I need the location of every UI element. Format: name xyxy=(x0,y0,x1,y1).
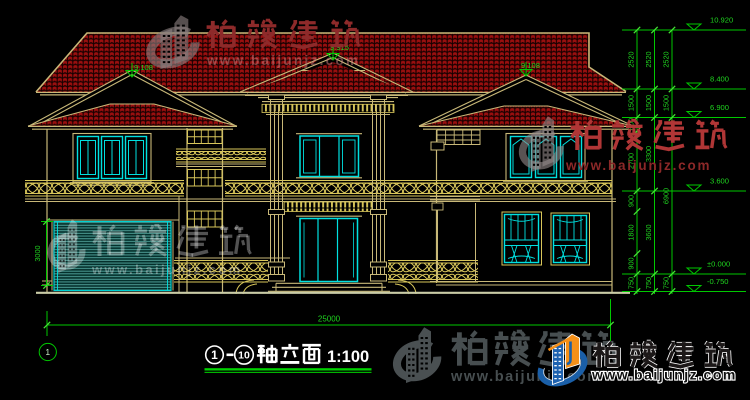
svg-text:1800: 1800 xyxy=(627,224,636,240)
svg-text:1500: 1500 xyxy=(644,95,653,111)
svg-text:6900: 6900 xyxy=(662,188,671,204)
svg-text:750: 750 xyxy=(644,277,653,289)
svg-text:3600: 3600 xyxy=(644,224,653,240)
svg-text:10.920: 10.920 xyxy=(710,16,733,25)
svg-text:±0.000: ±0.000 xyxy=(707,260,730,269)
svg-text:6.900: 6.900 xyxy=(710,103,729,112)
svg-text:2520: 2520 xyxy=(662,51,671,67)
svg-text:1: 1 xyxy=(45,347,50,357)
svg-text:25000: 25000 xyxy=(318,315,341,324)
svg-text:www.baijunjz.com: www.baijunjz.com xyxy=(91,262,243,277)
svg-text:900: 900 xyxy=(627,195,636,207)
svg-text:3000: 3000 xyxy=(33,245,42,261)
svg-text:8.400: 8.400 xyxy=(710,75,729,84)
svg-text:2520: 2520 xyxy=(644,51,653,67)
svg-text:750: 750 xyxy=(627,277,636,289)
svg-text:2520: 2520 xyxy=(627,51,636,67)
svg-text:3.600: 3.600 xyxy=(710,177,729,186)
svg-text:1500: 1500 xyxy=(662,95,671,111)
svg-text:-0.750: -0.750 xyxy=(707,277,729,286)
svg-text:900: 900 xyxy=(627,257,636,269)
svg-text:www.baijunjz.com: www.baijunjz.com xyxy=(591,367,737,383)
svg-text:1:100: 1:100 xyxy=(327,348,369,366)
svg-text:1: 1 xyxy=(211,348,218,362)
svg-text:750: 750 xyxy=(662,277,671,289)
svg-text:9.108: 9.108 xyxy=(521,61,540,70)
svg-text:10: 10 xyxy=(238,350,250,362)
svg-text:www.baijunjz.com: www.baijunjz.com xyxy=(206,53,360,68)
svg-text:www.baijunjz.com: www.baijunjz.com xyxy=(565,158,711,173)
svg-text:1500: 1500 xyxy=(627,95,636,111)
